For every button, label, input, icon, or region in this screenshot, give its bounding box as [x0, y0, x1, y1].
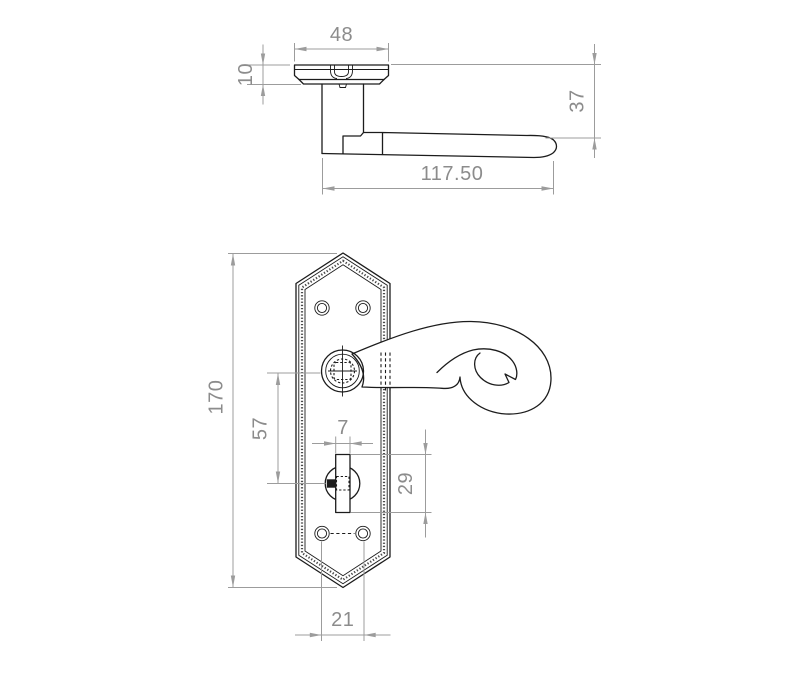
dim-48-arrow-right: [377, 47, 389, 52]
dim-117-arrow-right: [542, 186, 554, 191]
dim-29-arrow-bottom: [423, 513, 427, 525]
side-view-object-lines: [295, 65, 557, 158]
dim-7-label: 7: [337, 417, 349, 439]
screw-hole-bottom-left-inner: [317, 529, 326, 538]
dim-57-arrow-bottom: [276, 472, 280, 484]
spindle-hub: [331, 65, 353, 79]
dim-170-arrow-top: [231, 254, 235, 266]
dim-7-arrow-right: [350, 441, 362, 445]
screw-hole-top-right-inner: [358, 303, 367, 312]
dim-37-arrow-top: [592, 53, 596, 65]
front-view-lever: [352, 321, 551, 414]
lever-side-profile: [322, 133, 557, 158]
dim-7-arrow-left: [324, 441, 336, 445]
rose-outline: [295, 65, 389, 80]
dim-117-arrow-left: [323, 186, 335, 191]
rose-base: [299, 80, 384, 85]
dim-117-label: 117.50: [421, 163, 484, 185]
dim-29-lines: [351, 430, 432, 538]
dim-57-label: 57: [250, 417, 272, 440]
dim-7-lines: [312, 437, 373, 454]
dim-29-label: 29: [395, 472, 417, 495]
dim-37-arrow-bottom: [592, 138, 596, 150]
side-view-dimensions: 48 10 37 117.50: [235, 24, 601, 195]
dim-48-label: 48: [330, 24, 353, 46]
dim-48-arrow-left: [295, 47, 307, 52]
technical-drawing-page: 48 10 37 117.50: [0, 0, 800, 676]
drawing-canvas: 48 10 37 117.50: [0, 0, 800, 676]
dim-10-arrow-top: [261, 54, 265, 66]
dim-21-arrow-left: [310, 633, 322, 637]
dim-10-arrow-bottom: [261, 85, 265, 97]
dim-21-label: 21: [331, 609, 354, 631]
screw-hole-bottom-right-inner: [358, 529, 367, 538]
turn-knob-end: [327, 479, 336, 487]
dim-170-arrow-bottom: [231, 576, 235, 588]
dim-57-arrow-top: [276, 373, 280, 385]
front-view-thumbturn: [325, 455, 360, 513]
turn-bar: [336, 455, 350, 513]
dim-37-label: 37: [567, 89, 589, 112]
dim-29-arrow-top: [423, 443, 427, 455]
dim-21-arrow-right: [364, 633, 376, 637]
lever-curl-silhouette: [352, 321, 551, 414]
dim-10-label: 10: [235, 63, 257, 86]
screw-hole-top-left-inner: [317, 303, 326, 312]
dim-170-label: 170: [206, 380, 228, 415]
